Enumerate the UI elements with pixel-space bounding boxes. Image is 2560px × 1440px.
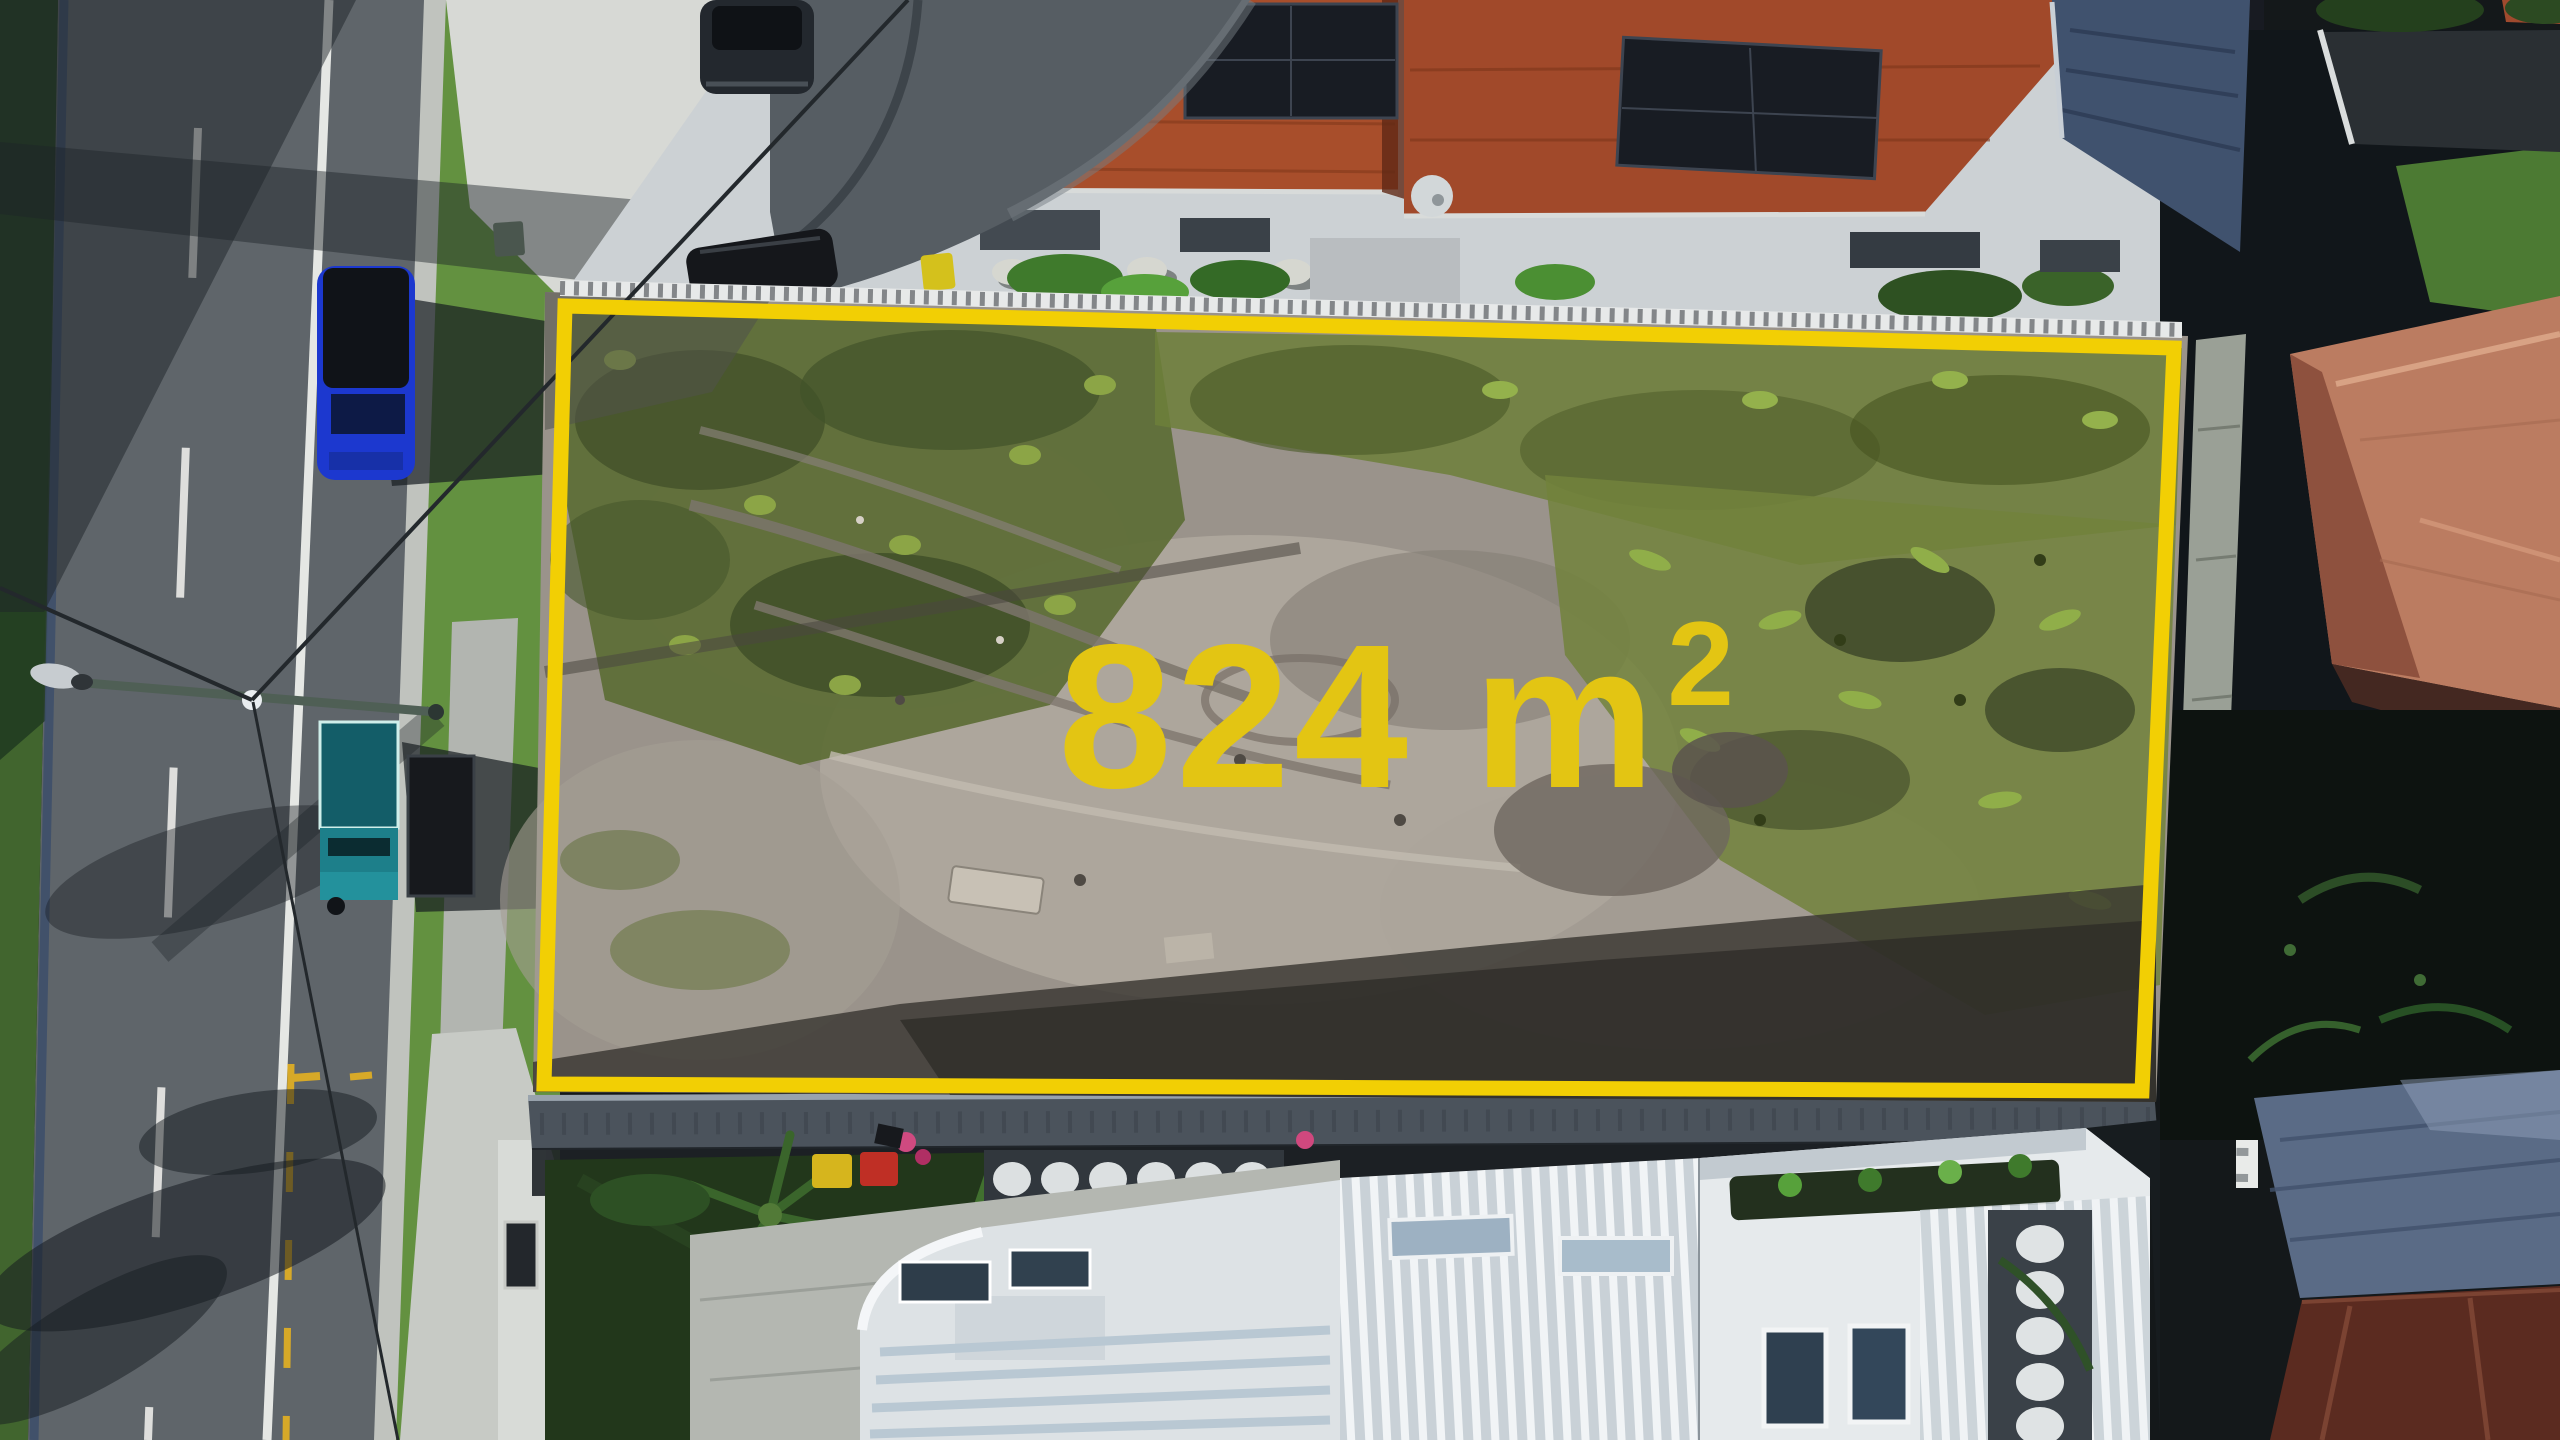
window bbox=[900, 1262, 990, 1302]
area-label: 824 m2 bbox=[1058, 597, 1738, 831]
window bbox=[1850, 1326, 1908, 1422]
aerial-photo: 824 m2 bbox=[0, 0, 2560, 1440]
yellow-wheelie-bin bbox=[920, 252, 956, 291]
window bbox=[1180, 218, 1270, 252]
dark-red-roof-bottom-right bbox=[2270, 1286, 2560, 1440]
skylight bbox=[1389, 1216, 1512, 1258]
scene: 824 m2 bbox=[0, 0, 2560, 1440]
area-value: 824 m bbox=[1058, 602, 1659, 831]
eave-gutter bbox=[1404, 214, 1925, 216]
skylight bbox=[1560, 1238, 1672, 1274]
window bbox=[2040, 240, 2120, 272]
window bbox=[1764, 1330, 1826, 1426]
solar-panel-array bbox=[1617, 37, 1881, 178]
ute-tray bbox=[320, 722, 398, 828]
neighbourhood-bottom bbox=[498, 1090, 2160, 1440]
parked-suv-top bbox=[700, 0, 814, 94]
metal-roof-bottom-right bbox=[2254, 1070, 2560, 1298]
window bbox=[505, 1222, 537, 1288]
area-exponent: 2 bbox=[1667, 597, 1738, 731]
satellite-dish bbox=[1411, 175, 1453, 217]
trailer bbox=[408, 756, 474, 896]
ribbed-roof bbox=[1340, 1158, 1700, 1440]
charcoal-roof bbox=[2322, 30, 2560, 152]
window bbox=[1850, 232, 1980, 268]
oval-privacy-screen bbox=[1988, 1210, 2092, 1440]
window bbox=[1010, 1250, 1090, 1288]
